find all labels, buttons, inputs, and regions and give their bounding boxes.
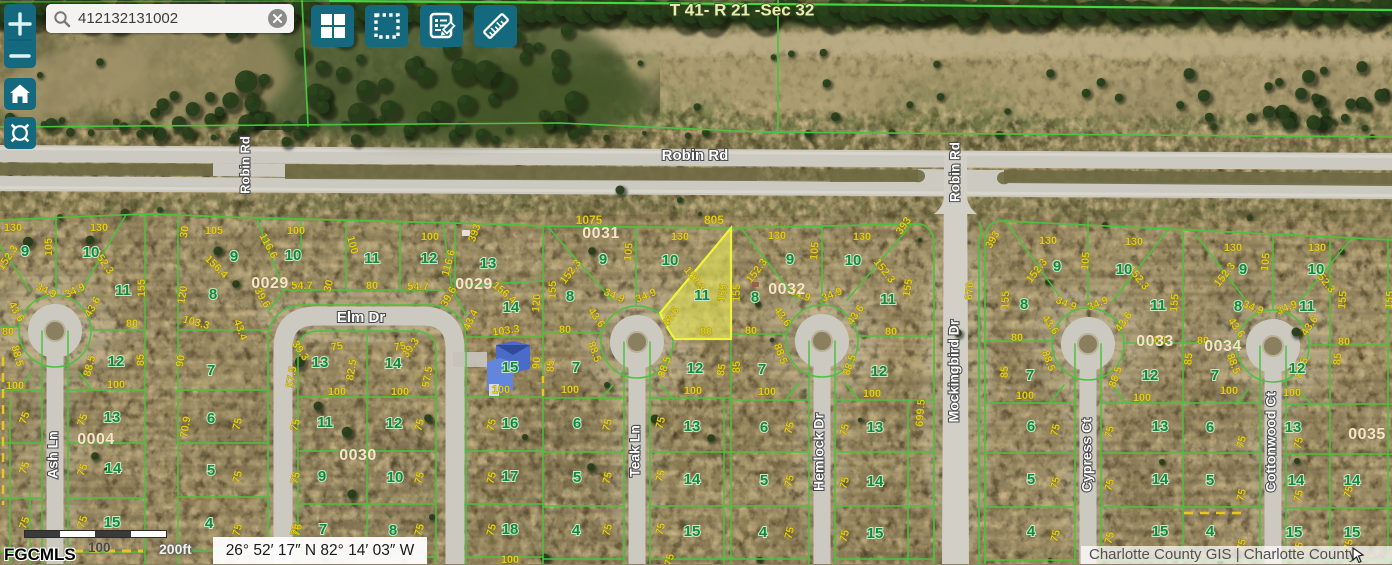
svg-text:100: 100 [421, 231, 439, 243]
svg-text:85: 85 [731, 361, 743, 374]
svg-text:155: 155 [1168, 293, 1182, 312]
svg-text:80: 80 [126, 318, 138, 330]
svg-text:85: 85 [715, 363, 729, 377]
svg-text:11: 11 [317, 414, 333, 431]
svg-text:130: 130 [1125, 236, 1143, 248]
svg-text:9: 9 [1239, 261, 1247, 278]
svg-text:155: 155 [1383, 290, 1392, 309]
svg-text:15: 15 [1152, 523, 1169, 540]
svg-text:7: 7 [1026, 367, 1034, 384]
svg-text:105: 105 [205, 225, 223, 237]
svg-text:105: 105 [1079, 251, 1093, 270]
svg-text:75: 75 [330, 340, 344, 354]
svg-text:7: 7 [758, 361, 766, 378]
svg-text:130: 130 [671, 231, 689, 243]
svg-text:80: 80 [1338, 336, 1350, 348]
svg-text:5: 5 [1027, 471, 1035, 488]
svg-text:10: 10 [1308, 261, 1325, 278]
svg-text:105: 105 [43, 238, 55, 256]
svg-text:100: 100 [758, 386, 776, 398]
svg-text:0029: 0029 [251, 275, 289, 292]
svg-text:10: 10 [1116, 261, 1133, 278]
svg-text:15: 15 [502, 359, 519, 376]
svg-text:5: 5 [760, 472, 768, 489]
svg-text:80: 80 [366, 280, 378, 292]
svg-text:130: 130 [768, 230, 786, 242]
svg-text:100: 100 [328, 386, 346, 398]
svg-text:13: 13 [1285, 419, 1302, 436]
svg-text:0034: 0034 [1204, 338, 1242, 355]
svg-text:9: 9 [786, 251, 794, 268]
svg-text:0029: 0029 [455, 276, 493, 293]
svg-text:15: 15 [684, 523, 701, 540]
svg-text:100: 100 [1283, 387, 1301, 399]
svg-text:T 41- R 21 -Sec 32: T 41- R 21 -Sec 32 [670, 0, 815, 19]
svg-text:670: 670 [963, 281, 977, 300]
svg-text:4: 4 [1206, 523, 1215, 540]
svg-text:15: 15 [867, 525, 884, 542]
svg-text:13: 13 [104, 409, 121, 426]
svg-text:90: 90 [530, 356, 543, 369]
svg-text:10: 10 [387, 469, 404, 486]
svg-text:11: 11 [1299, 298, 1315, 315]
svg-text:8: 8 [1234, 298, 1242, 315]
svg-text:100: 100 [684, 385, 702, 397]
svg-text:85: 85 [1331, 352, 1344, 365]
svg-text:11: 11 [364, 250, 380, 267]
svg-text:699.5: 699.5 [914, 399, 928, 427]
svg-text:13: 13 [480, 255, 497, 272]
svg-text:85: 85 [545, 360, 557, 373]
svg-text:8: 8 [1020, 296, 1028, 313]
svg-text:14: 14 [684, 471, 701, 488]
svg-text:5: 5 [1206, 472, 1214, 489]
svg-text:12: 12 [1142, 367, 1159, 384]
svg-text:11: 11 [880, 291, 896, 308]
svg-text:130: 130 [1224, 242, 1242, 254]
svg-text:130: 130 [90, 222, 108, 234]
svg-text:13: 13 [312, 354, 329, 371]
svg-text:Hemlock Dr: Hemlock Dr [811, 413, 827, 491]
svg-text:100: 100 [6, 380, 24, 392]
svg-text:14: 14 [503, 299, 520, 316]
svg-text:80: 80 [700, 326, 712, 338]
svg-text:805: 805 [704, 213, 724, 227]
svg-text:130: 130 [1039, 235, 1057, 247]
svg-text:5: 5 [207, 462, 215, 479]
svg-text:18: 18 [502, 521, 519, 538]
svg-text:105: 105 [622, 242, 636, 261]
svg-text:11: 11 [1150, 297, 1166, 314]
svg-text:85: 85 [1182, 352, 1195, 365]
svg-text:54.7: 54.7 [407, 281, 428, 293]
svg-text:8: 8 [566, 288, 574, 305]
svg-text:13: 13 [1152, 418, 1169, 435]
svg-text:100: 100 [1133, 392, 1151, 404]
svg-text:14: 14 [385, 355, 402, 372]
svg-text:80: 80 [745, 325, 757, 337]
svg-text:54.7: 54.7 [291, 280, 312, 292]
svg-text:105: 105 [1259, 252, 1273, 271]
svg-text:130: 130 [853, 231, 871, 243]
svg-text:85: 85 [999, 366, 1011, 379]
svg-text:105: 105 [808, 241, 822, 260]
svg-text:0032: 0032 [768, 281, 806, 298]
svg-text:100: 100 [1220, 385, 1238, 397]
svg-text:100: 100 [391, 386, 409, 398]
svg-text:Teak Ln: Teak Ln [627, 425, 643, 477]
svg-text:155: 155 [1336, 290, 1350, 309]
svg-text:4: 4 [1027, 523, 1036, 540]
svg-text:10: 10 [83, 244, 100, 261]
svg-text:15: 15 [1344, 524, 1361, 541]
svg-text:85: 85 [135, 354, 147, 366]
svg-text:0004: 0004 [77, 431, 115, 448]
svg-text:8: 8 [751, 289, 759, 306]
svg-text:5: 5 [573, 469, 581, 486]
svg-text:7: 7 [319, 521, 327, 538]
svg-text:90: 90 [174, 354, 188, 368]
svg-text:100: 100 [561, 384, 579, 396]
svg-text:0035: 0035 [1348, 426, 1386, 443]
svg-text:9: 9 [599, 251, 607, 268]
svg-text:80: 80 [885, 326, 897, 338]
svg-text:6: 6 [207, 410, 215, 427]
svg-text:10: 10 [662, 252, 679, 269]
svg-text:155: 155 [1000, 291, 1013, 310]
svg-text:11: 11 [694, 287, 710, 304]
svg-text:155: 155 [731, 284, 744, 303]
svg-text:7: 7 [1211, 367, 1219, 384]
svg-text:0031: 0031 [582, 225, 620, 242]
svg-text:100: 100 [287, 225, 305, 237]
svg-text:7: 7 [572, 359, 580, 376]
svg-text:9: 9 [21, 243, 29, 260]
svg-text:12: 12 [386, 415, 403, 432]
svg-text:Elm Dr: Elm Dr [337, 309, 386, 326]
svg-text:13: 13 [684, 418, 701, 435]
svg-text:Cypress Ct: Cypress Ct [1079, 418, 1095, 492]
svg-text:4: 4 [759, 524, 768, 541]
svg-text:16: 16 [502, 415, 519, 432]
svg-text:80: 80 [559, 324, 571, 336]
svg-text:12: 12 [1289, 360, 1306, 377]
svg-text:155: 155 [547, 281, 560, 300]
svg-text:15: 15 [104, 514, 121, 531]
svg-text:Robin Rd: Robin Rd [948, 142, 963, 202]
svg-text:Ash Ln: Ash Ln [45, 431, 61, 478]
svg-text:14: 14 [1288, 472, 1305, 489]
svg-text:100: 100 [501, 554, 519, 564]
svg-text:12: 12 [108, 353, 125, 370]
svg-text:14: 14 [867, 473, 884, 490]
svg-text:11: 11 [115, 282, 131, 299]
svg-text:13: 13 [867, 419, 884, 436]
svg-text:100: 100 [107, 379, 125, 391]
svg-text:4: 4 [205, 515, 214, 532]
svg-text:120: 120 [530, 293, 544, 312]
svg-text:Mockingbird Dr: Mockingbird Dr [946, 319, 962, 422]
svg-text:9: 9 [318, 468, 326, 485]
svg-text:14: 14 [1152, 471, 1169, 488]
svg-text:12: 12 [871, 363, 888, 380]
svg-text:80: 80 [2, 326, 14, 338]
svg-text:6: 6 [573, 415, 581, 432]
svg-text:14: 14 [1344, 472, 1361, 489]
svg-text:4: 4 [572, 522, 581, 539]
svg-text:10: 10 [285, 247, 302, 264]
svg-text:Robin Rd: Robin Rd [662, 147, 729, 164]
svg-text:7: 7 [207, 362, 215, 379]
svg-text:100: 100 [1016, 390, 1034, 402]
svg-text:100: 100 [492, 384, 510, 396]
svg-text:8: 8 [209, 286, 217, 303]
svg-text:130: 130 [4, 222, 22, 234]
svg-text:Robin Rd: Robin Rd [237, 136, 252, 194]
svg-text:17: 17 [502, 468, 519, 485]
svg-text:Cottonwood Ct: Cottonwood Ct [1263, 392, 1279, 493]
svg-text:9: 9 [1053, 258, 1061, 275]
svg-text:12: 12 [421, 250, 438, 267]
svg-text:12: 12 [687, 360, 704, 377]
svg-text:100: 100 [863, 388, 881, 400]
svg-text:80: 80 [1011, 332, 1023, 344]
svg-text:130: 130 [1308, 242, 1326, 254]
svg-text:0033: 0033 [1136, 333, 1174, 350]
svg-text:15: 15 [1286, 524, 1303, 541]
svg-text:0030: 0030 [339, 447, 377, 464]
svg-text:14: 14 [105, 460, 122, 477]
svg-text:6: 6 [1027, 418, 1035, 435]
svg-text:10: 10 [845, 252, 862, 269]
svg-text:155: 155 [136, 279, 148, 297]
svg-text:30: 30 [178, 225, 192, 239]
svg-text:6: 6 [1206, 419, 1214, 436]
svg-text:6: 6 [760, 419, 768, 436]
svg-text:9: 9 [230, 248, 238, 265]
